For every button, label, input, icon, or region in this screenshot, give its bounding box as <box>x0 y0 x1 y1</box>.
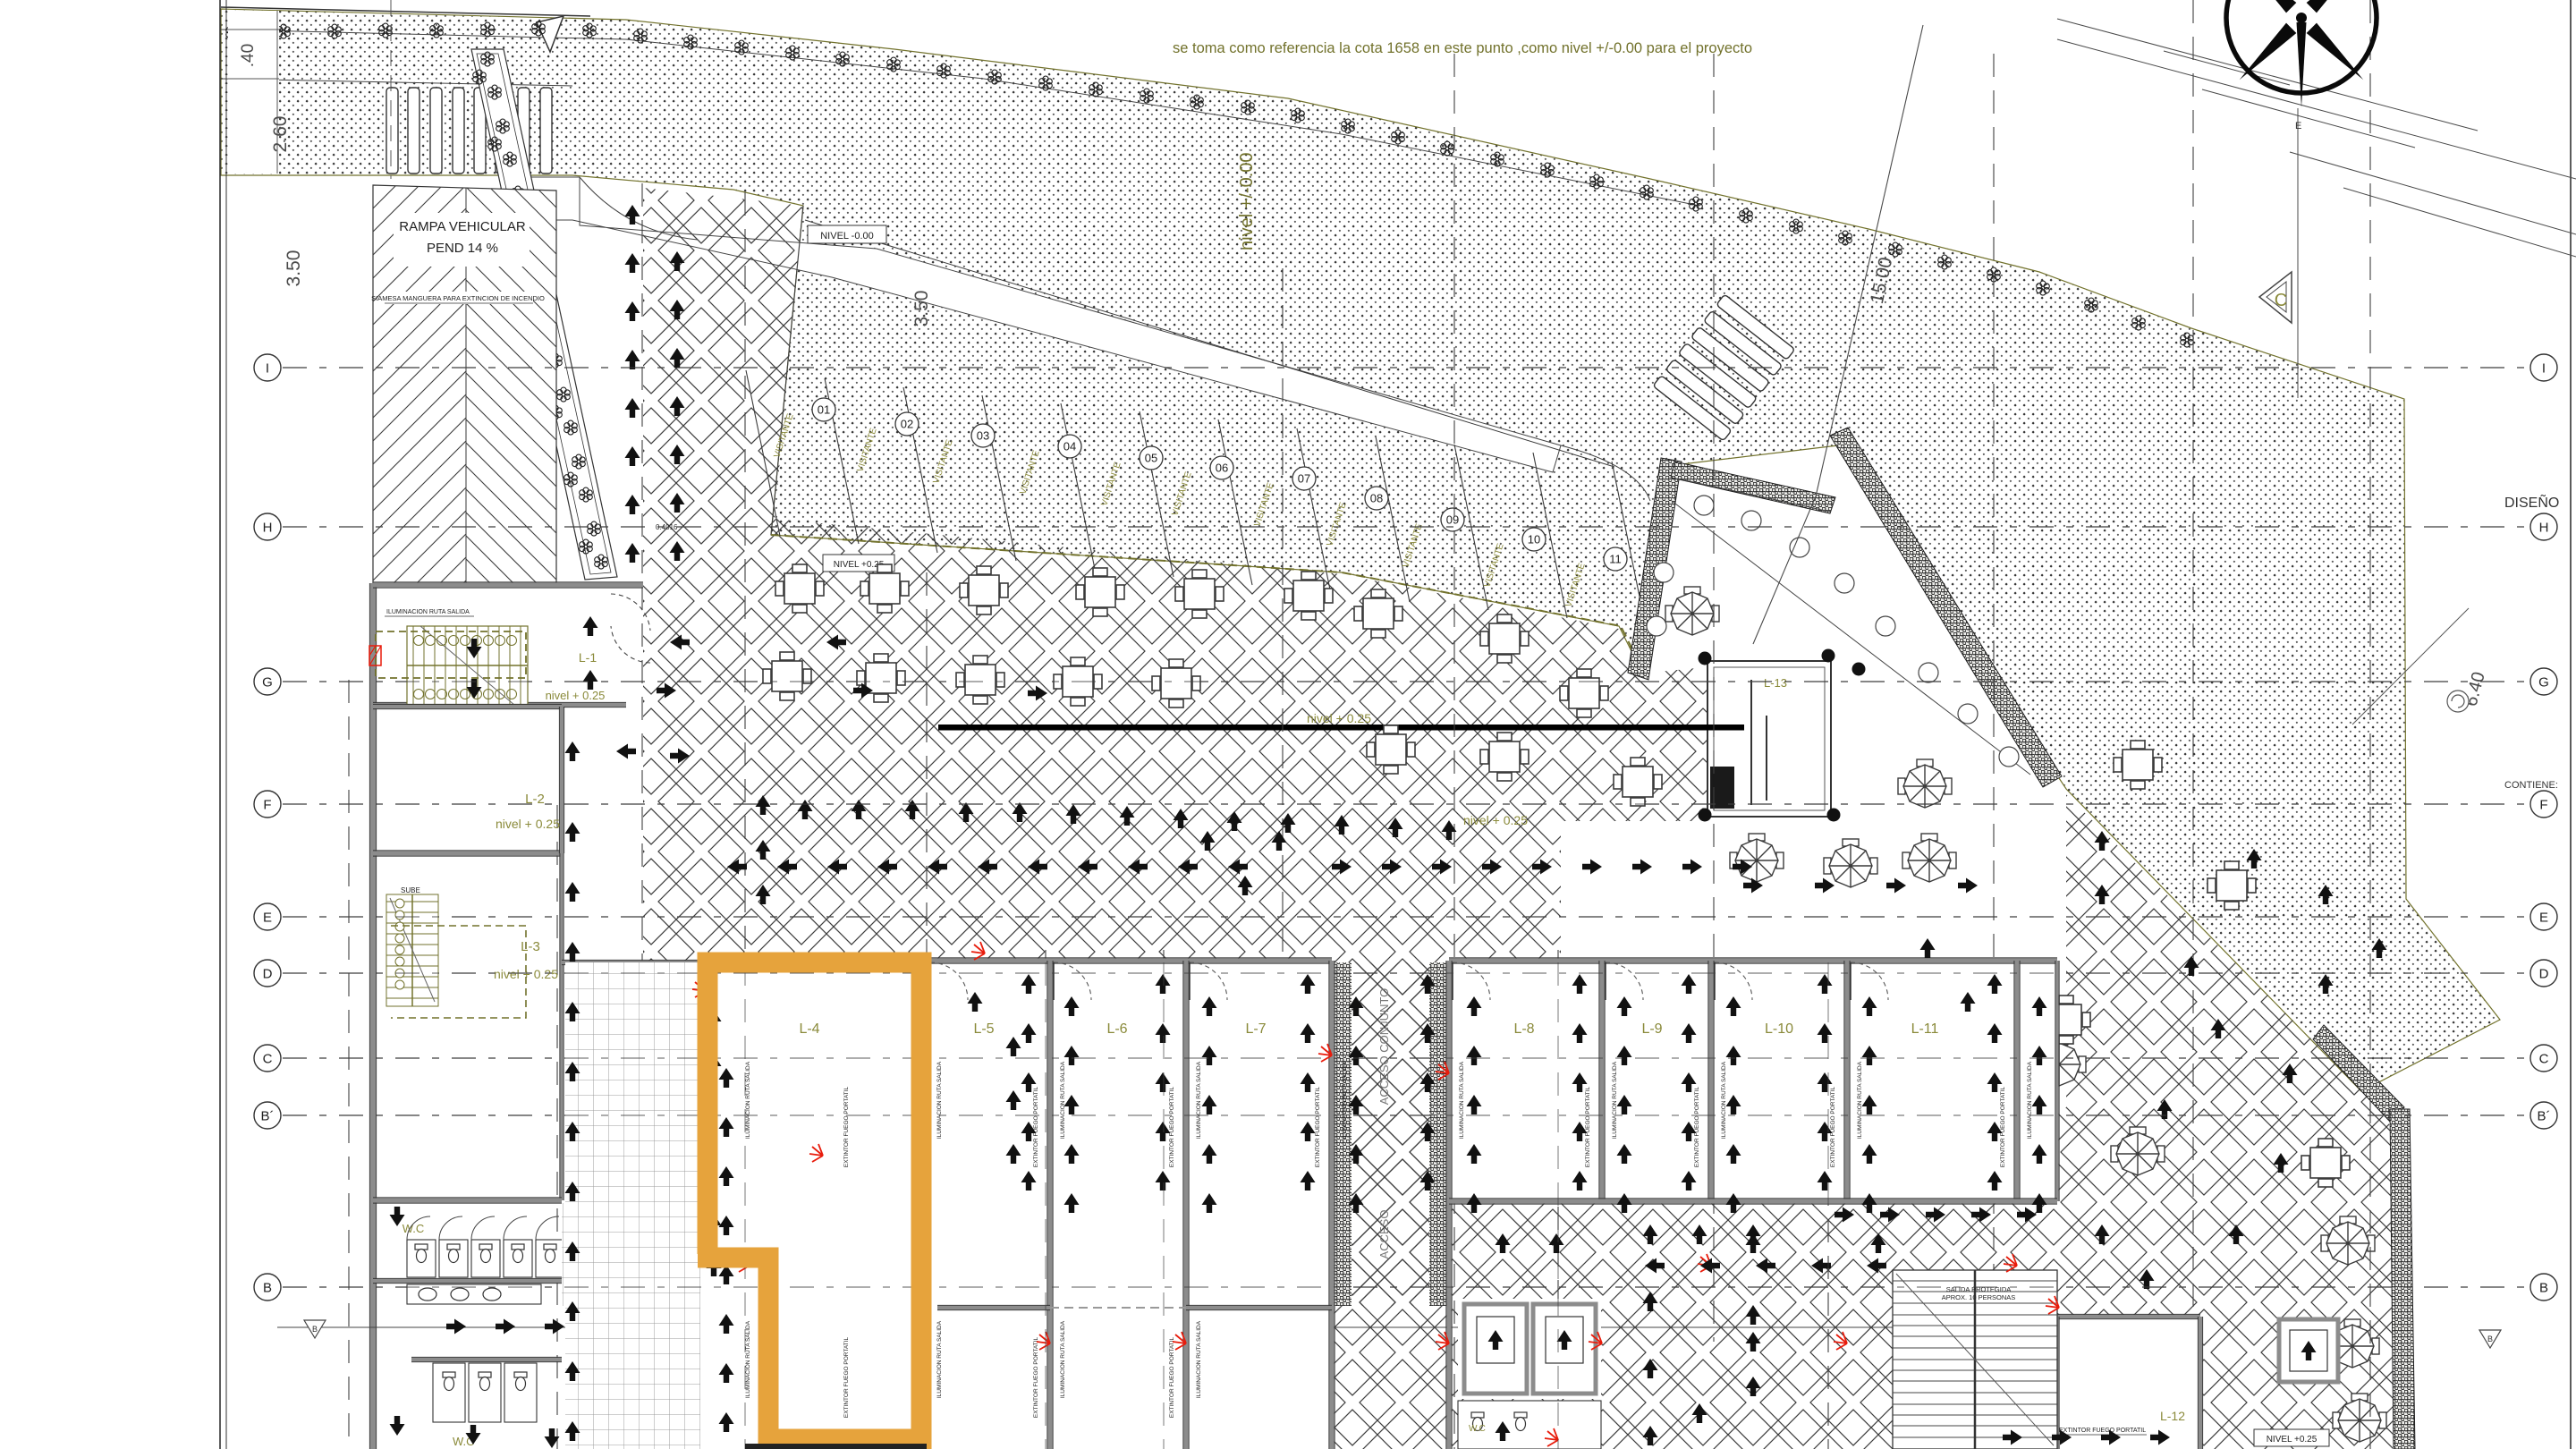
svg-text:L-6: L-6 <box>1106 1021 1127 1037</box>
svg-text:PEND 14 %: PEND 14 % <box>427 241 498 256</box>
svg-text:B´: B´ <box>2538 1109 2551 1124</box>
svg-text:02: 02 <box>901 418 913 431</box>
svg-text:F: F <box>2539 798 2547 813</box>
svg-text:L-9: L-9 <box>1641 1021 1662 1037</box>
svg-text:EXTINTOR FUEGO PORTATIL: EXTINTOR FUEGO PORTATIL <box>1315 1087 1321 1168</box>
svg-text:B: B <box>263 1281 272 1296</box>
svg-text:G: G <box>2538 675 2549 691</box>
svg-text:se toma como referencia la cot: se toma como referencia la cota 1658 en … <box>1173 40 1752 56</box>
svg-text:ILUMINACION RUTA SALIDA: ILUMINACION RUTA SALIDA <box>1196 1320 1202 1398</box>
svg-text:APROX. 10 PERSONAS: APROX. 10 PERSONAS <box>1942 1293 2016 1301</box>
svg-text:C: C <box>263 1052 273 1067</box>
svg-text:W.C: W.C <box>1469 1424 1486 1434</box>
svg-text:EXTINTOR FUEGO PORTATIL: EXTINTOR FUEGO PORTATIL <box>1033 1087 1039 1168</box>
svg-text:I: I <box>266 361 269 377</box>
svg-text:L-7: L-7 <box>1245 1021 1266 1037</box>
svg-text:L-13: L-13 <box>1764 676 1787 690</box>
svg-text:06: 06 <box>1216 462 1228 475</box>
svg-text:H: H <box>263 521 273 536</box>
svg-text:04: 04 <box>1063 440 1076 453</box>
svg-text:B: B <box>312 1325 318 1334</box>
svg-text:L-1: L-1 <box>579 650 597 665</box>
svg-text:nivel + 0.25: nivel + 0.25 <box>1307 711 1371 725</box>
svg-text:L-4: L-4 <box>799 1021 819 1037</box>
svg-text:09: 09 <box>1446 513 1459 527</box>
svg-text:ILUMINACION RUTA SALIDA: ILUMINACION RUTA SALIDA <box>1459 1061 1465 1139</box>
svg-text:D: D <box>2539 967 2549 982</box>
svg-text:E: E <box>263 911 272 926</box>
svg-text:EXTINTOR FUEGO PORTATIL: EXTINTOR FUEGO PORTATIL <box>843 1337 850 1419</box>
svg-text:EXTINTOR FUEGO PORTATIL: EXTINTOR FUEGO PORTATIL <box>2000 1087 2006 1168</box>
svg-text:ILUMINACION RUTA SALIDA: ILUMINACION RUTA SALIDA <box>745 1320 751 1398</box>
svg-text:2.60: 2.60 <box>270 116 291 153</box>
svg-text:RAMPA VEHICULAR: RAMPA VEHICULAR <box>399 219 526 234</box>
svg-text:L-8: L-8 <box>1513 1021 1534 1037</box>
svg-text:ILUMINACION RUTA SALIDA: ILUMINACION RUTA SALIDA <box>1060 1320 1066 1398</box>
svg-text:D: D <box>263 967 273 982</box>
svg-text:L-3: L-3 <box>521 939 540 954</box>
svg-text:EXTINTOR FUEGO PORTATIL: EXTINTOR FUEGO PORTATIL <box>1585 1087 1591 1168</box>
svg-text:L-12: L-12 <box>2160 1409 2185 1423</box>
svg-text:NIVEL +0.25: NIVEL +0.25 <box>2267 1435 2318 1445</box>
svg-text:SALIDA PROTEGIDA: SALIDA PROTEGIDA <box>1946 1285 2012 1293</box>
svg-text:ILUMINACION RUTA SALIDA: ILUMINACION RUTA SALIDA <box>1857 1061 1863 1139</box>
svg-text:ILUMINACION RUTA SALIDA: ILUMINACION RUTA SALIDA <box>1060 1061 1066 1139</box>
svg-text:ACCESO CONJUNTO: ACCESO CONJUNTO <box>1377 988 1391 1106</box>
svg-text:nivel + 0.25: nivel + 0.25 <box>1463 813 1528 827</box>
svg-text:ACCESO: ACCESO <box>1377 1210 1391 1259</box>
svg-text:08: 08 <box>1370 492 1383 505</box>
svg-text:G: G <box>262 675 273 691</box>
svg-text:ILUMINACION RUTA SALIDA: ILUMINACION RUTA SALIDA <box>745 1061 751 1139</box>
svg-text:EXTINTOR FUEGO PORTATIL: EXTINTOR FUEGO PORTATIL <box>2059 1428 2146 1434</box>
svg-text:ILUMINACION RUTA SALIDA: ILUMINACION RUTA SALIDA <box>1342 1061 1348 1139</box>
svg-text:NIVEL +0.25: NIVEL +0.25 <box>834 560 885 570</box>
svg-text:EXTINTOR FUEGO PORTATIL: EXTINTOR FUEGO PORTATIL <box>1830 1087 1836 1168</box>
svg-text:L-5: L-5 <box>973 1021 994 1037</box>
svg-text:EXTINTOR FUEGO PORTATIL: EXTINTOR FUEGO PORTATIL <box>1169 1337 1175 1419</box>
svg-text:ILUMINACION RUTA SALIDA: ILUMINACION RUTA SALIDA <box>936 1061 943 1139</box>
svg-text:SIAMESA MANGUERA PARA EXTINCI: SIAMESA MANGUERA PARA EXTINCION DE INCEN… <box>371 294 545 302</box>
svg-text:EXTINTOR FUEGO PORTATIL: EXTINTOR FUEGO PORTATIL <box>1169 1087 1175 1168</box>
svg-text:05: 05 <box>1145 452 1157 465</box>
svg-text:SUBE: SUBE <box>401 886 420 894</box>
svg-text:11: 11 <box>1609 553 1622 566</box>
svg-text:B´: B´ <box>261 1109 275 1124</box>
svg-text:01: 01 <box>818 403 830 417</box>
svg-text:E: E <box>2539 911 2548 926</box>
svg-text:ILUMINACION RUTA SALIDA: ILUMINACION RUTA SALIDA <box>386 609 470 615</box>
svg-text:NIVEL -0.00: NIVEL -0.00 <box>820 231 874 241</box>
svg-text:nivel +/-0.00: nivel +/-0.00 <box>1237 152 1257 250</box>
svg-text:3.50: 3.50 <box>284 250 304 287</box>
svg-text:H: H <box>2539 521 2549 536</box>
svg-text:B: B <box>2539 1281 2548 1296</box>
svg-text:CONTIENE:: CONTIENE: <box>2504 780 2558 791</box>
svg-text:E: E <box>2295 121 2301 131</box>
svg-text:nivel + 0.25: nivel + 0.25 <box>496 817 560 831</box>
svg-text:ILUMINACION RUTA SALIDA: ILUMINACION RUTA SALIDA <box>1612 1061 1618 1139</box>
svg-text:3.50: 3.50 <box>911 291 932 327</box>
svg-text:07: 07 <box>1298 472 1310 486</box>
svg-text:ILUMINACION RUTA SALIDA: ILUMINACION RUTA SALIDA <box>2027 1061 2033 1139</box>
svg-text:.40: .40 <box>239 44 258 67</box>
svg-text:DISEÑO: DISEÑO <box>2504 493 2559 511</box>
svg-text:B: B <box>2487 1335 2493 1343</box>
svg-text:EXTINTOR FUEGO PORTATIL: EXTINTOR FUEGO PORTATIL <box>843 1087 850 1168</box>
svg-text:EXTINTOR FUEGO PORTATIL: EXTINTOR FUEGO PORTATIL <box>1694 1087 1700 1168</box>
svg-text:F: F <box>263 798 271 813</box>
svg-text:EXTINTOR FUEGO PORTATIL: EXTINTOR FUEGO PORTATIL <box>1033 1337 1039 1419</box>
svg-text:03: 03 <box>977 429 989 443</box>
svg-text:C: C <box>2539 1052 2549 1067</box>
svg-text:ILUMINACION RUTA SALIDA: ILUMINACION RUTA SALIDA <box>1196 1061 1202 1139</box>
svg-text:ILUMINACION RUTA SALIDA: ILUMINACION RUTA SALIDA <box>936 1320 943 1398</box>
svg-text:10: 10 <box>1528 533 1540 547</box>
svg-text:L-10: L-10 <box>1765 1021 1793 1037</box>
svg-text:ILUMINACION RUTA SALIDA: ILUMINACION RUTA SALIDA <box>1721 1061 1727 1139</box>
svg-text:C: C <box>2275 291 2287 310</box>
svg-text:L-11: L-11 <box>1911 1021 1939 1037</box>
svg-text:I: I <box>2542 361 2546 377</box>
svg-text:nivel + 0.25: nivel + 0.25 <box>546 689 606 702</box>
